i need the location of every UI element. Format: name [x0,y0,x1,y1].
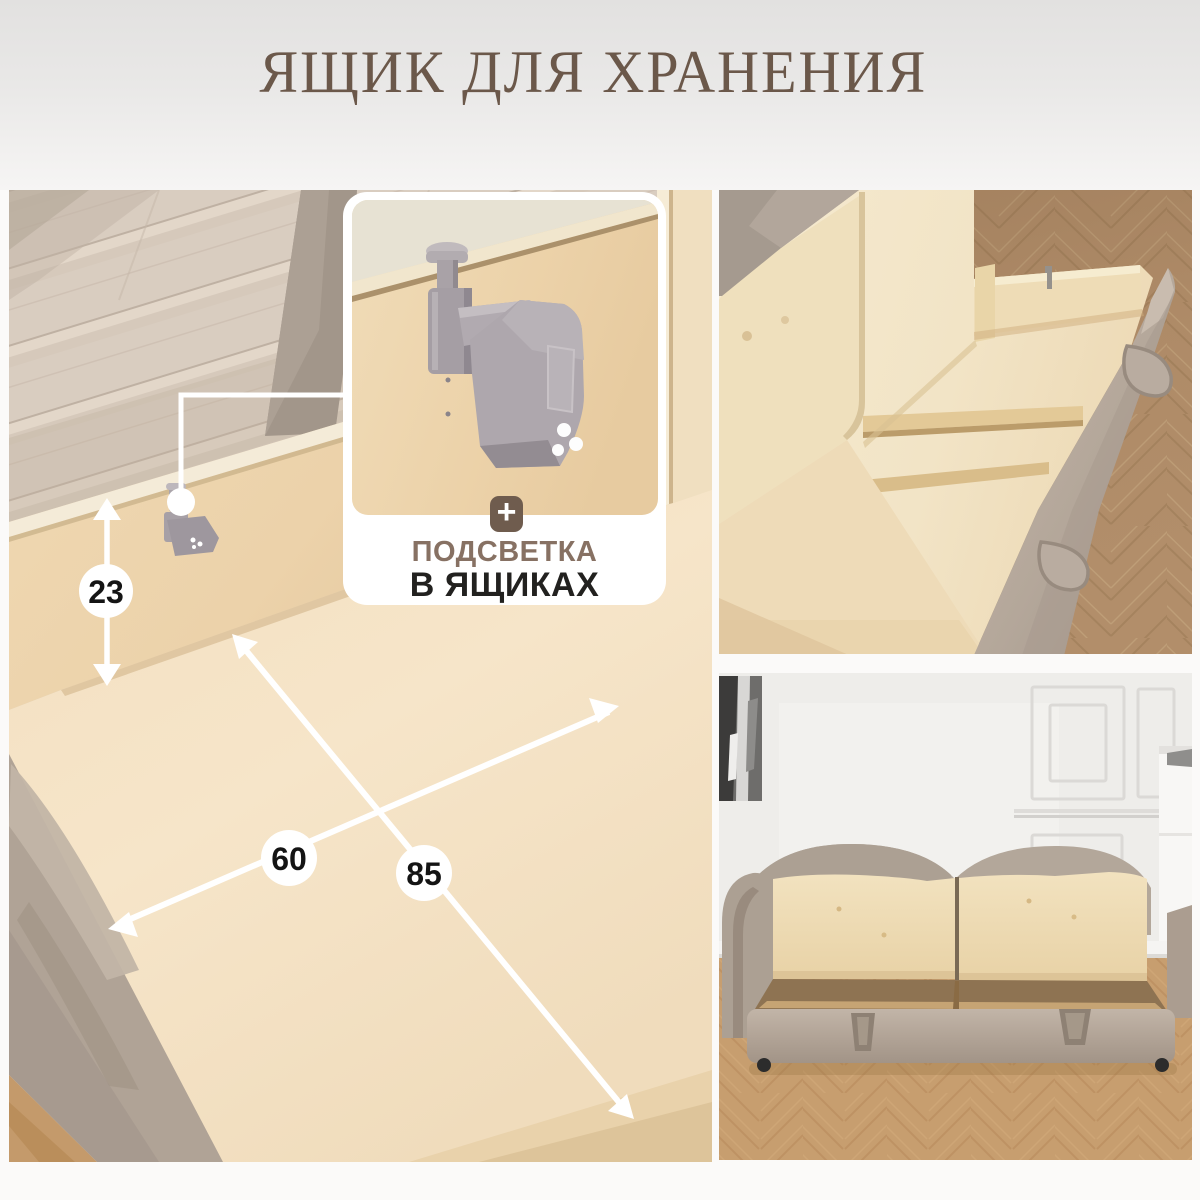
svg-text:60: 60 [271,841,307,877]
svg-text:23: 23 [88,574,124,610]
svg-text:85: 85 [406,856,442,892]
